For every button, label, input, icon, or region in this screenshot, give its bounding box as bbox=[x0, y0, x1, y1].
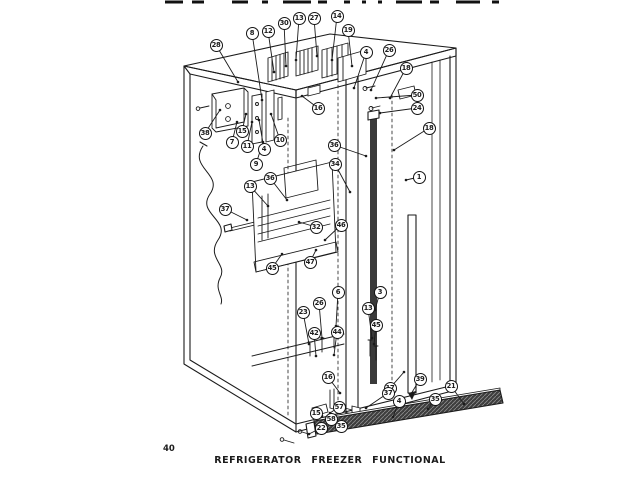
callout-47-30: 47 bbox=[304, 256, 317, 269]
callout-1-14: 1 bbox=[413, 171, 426, 184]
callout-38-18: 38 bbox=[199, 127, 212, 140]
callout-46-29: 46 bbox=[335, 219, 348, 232]
callout-22-51: 22 bbox=[315, 422, 328, 435]
callout-24-12: 24 bbox=[411, 102, 424, 115]
callout-18-10: 18 bbox=[400, 62, 413, 75]
callout-45-31: 45 bbox=[266, 262, 279, 275]
callout-15-48: 15 bbox=[310, 407, 323, 420]
callout-32-28: 32 bbox=[310, 221, 323, 234]
callout-23-32: 23 bbox=[297, 306, 310, 319]
callout-8-1: 8 bbox=[246, 27, 259, 40]
callout-45-40: 45 bbox=[370, 319, 383, 332]
callout-37-27: 37 bbox=[219, 203, 232, 216]
callout-26-9: 26 bbox=[383, 44, 396, 57]
callout-15-20: 15 bbox=[236, 125, 249, 138]
callout-4-46: 4 bbox=[393, 395, 406, 408]
callout-39-42: 39 bbox=[414, 373, 427, 386]
callout-6-34: 6 bbox=[332, 286, 345, 299]
callout-18-13: 18 bbox=[423, 122, 436, 135]
callout-4-22: 4 bbox=[258, 143, 271, 156]
callout-16-37: 16 bbox=[322, 371, 335, 384]
callout-50-11: 50 bbox=[411, 89, 424, 102]
page-number: 40 bbox=[163, 444, 175, 454]
callout-42-35: 42 bbox=[308, 327, 321, 340]
callout-36-25: 36 bbox=[264, 172, 277, 185]
callout-37-45: 37 bbox=[382, 387, 395, 400]
callout-13-4: 13 bbox=[293, 12, 306, 25]
callout-3-38: 3 bbox=[374, 286, 387, 299]
callout-13-39: 13 bbox=[362, 302, 375, 315]
callout-36-15: 36 bbox=[328, 139, 341, 152]
callout-21-43: 21 bbox=[445, 380, 458, 393]
callout-13-26: 13 bbox=[244, 180, 257, 193]
callout-14-6: 14 bbox=[331, 10, 344, 23]
callout-19-7: 19 bbox=[342, 24, 355, 37]
callout-7-19: 7 bbox=[226, 136, 239, 149]
callout-10-23: 10 bbox=[274, 134, 287, 147]
scanned-parts-diagram-page: 2881230132714194261850241813634163871511… bbox=[0, 0, 640, 480]
callout-9-24: 9 bbox=[250, 158, 263, 171]
callout-11-21: 11 bbox=[241, 140, 254, 153]
callout-4-8: 4 bbox=[360, 46, 373, 59]
callout-12-2: 12 bbox=[262, 25, 275, 38]
callout-57-47: 57 bbox=[333, 401, 346, 414]
callout-27-5: 27 bbox=[308, 12, 321, 25]
callout-35-50: 35 bbox=[335, 420, 348, 433]
callout-28-0: 28 bbox=[210, 39, 223, 52]
callout-44-36: 44 bbox=[331, 326, 344, 339]
callout-16-17: 16 bbox=[312, 102, 325, 115]
callout-34-16: 34 bbox=[329, 158, 342, 171]
callout-26-33: 26 bbox=[313, 297, 326, 310]
callout-30-3: 30 bbox=[278, 17, 291, 30]
callout-35-44: 35 bbox=[429, 393, 442, 406]
figure-caption: REFRIGERATOR FREEZER FUNCTIONAL bbox=[170, 455, 490, 466]
